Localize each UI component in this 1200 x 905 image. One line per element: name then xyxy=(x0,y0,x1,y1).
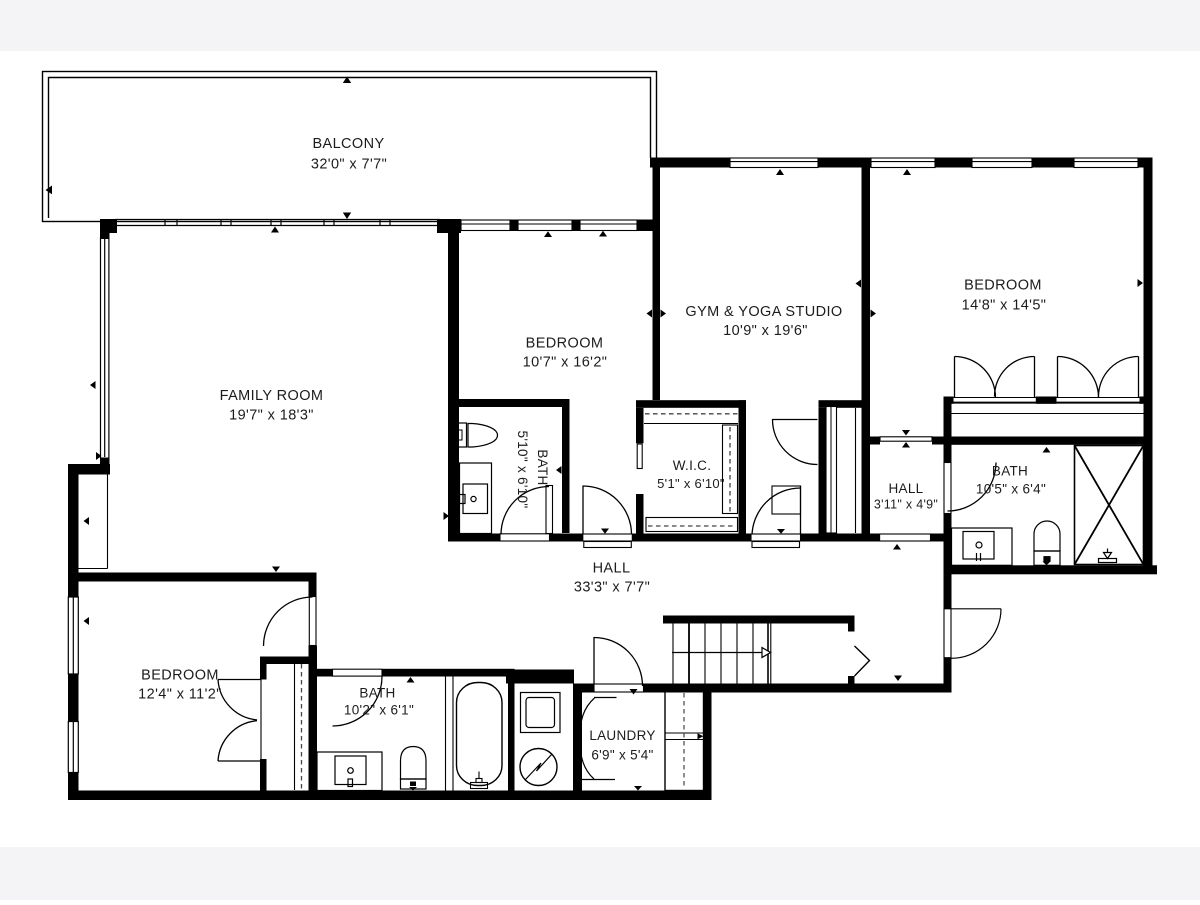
svg-text:GYM & YOGA STUDIO: GYM & YOGA STUDIO xyxy=(685,304,842,320)
svg-text:BATH: BATH xyxy=(359,686,395,701)
svg-text:10'9" x 19'6": 10'9" x 19'6" xyxy=(723,323,808,339)
svg-text:HALL: HALL xyxy=(889,481,924,496)
svg-text:BEDROOM: BEDROOM xyxy=(964,278,1042,294)
svg-text:BEDROOM: BEDROOM xyxy=(141,668,219,684)
svg-text:33'3" x 7'7": 33'3" x 7'7" xyxy=(574,580,650,596)
svg-text:HALL: HALL xyxy=(593,561,631,577)
svg-text:12'4" x 11'2": 12'4" x 11'2" xyxy=(138,687,222,703)
svg-text:FAMILY ROOM: FAMILY ROOM xyxy=(220,388,324,404)
svg-text:10'5" x 6'4": 10'5" x 6'4" xyxy=(976,482,1046,497)
svg-text:32'0" x 7'7": 32'0" x 7'7" xyxy=(311,157,387,173)
svg-text:3'11" x 4'9": 3'11" x 4'9" xyxy=(874,498,938,512)
svg-text:6'9" x 5'4": 6'9" x 5'4" xyxy=(591,748,653,763)
svg-text:5'10" x 6'10": 5'10" x 6'10" xyxy=(515,431,530,509)
svg-text:10'2" x 6'1": 10'2" x 6'1" xyxy=(344,703,414,718)
svg-text:BATH: BATH xyxy=(992,464,1028,479)
svg-text:5'1" x 6'10": 5'1" x 6'10" xyxy=(657,476,725,491)
svg-text:W.I.C.: W.I.C. xyxy=(673,458,712,473)
svg-text:BALCONY: BALCONY xyxy=(312,136,384,152)
svg-text:14'8" x 14'5": 14'8" x 14'5" xyxy=(962,298,1047,314)
svg-text:19'7" x 18'3": 19'7" x 18'3" xyxy=(229,408,314,424)
svg-text:BEDROOM: BEDROOM xyxy=(526,336,604,352)
svg-text:BATH: BATH xyxy=(535,449,550,485)
svg-text:LAUNDRY: LAUNDRY xyxy=(589,728,655,743)
svg-text:10'7" x 16'2": 10'7" x 16'2" xyxy=(523,355,608,371)
